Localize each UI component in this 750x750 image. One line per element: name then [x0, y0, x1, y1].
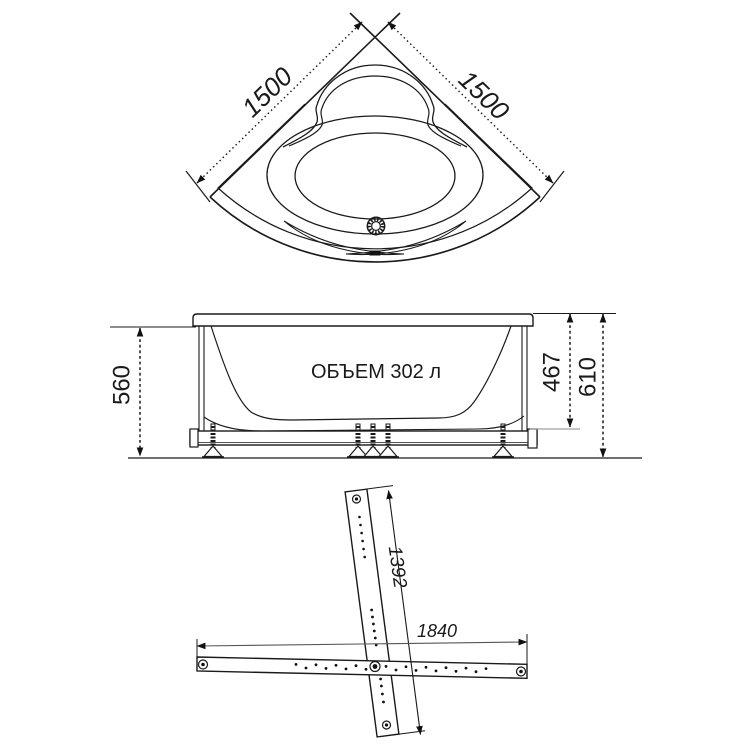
drawing-canvas: 1500 1500	[0, 0, 750, 750]
dim-467-label: 467	[539, 352, 566, 392]
rim-slab	[193, 314, 533, 326]
dim-610-label: 610	[575, 357, 602, 397]
frame-view: 1392 1840	[197, 486, 527, 737]
tub-rim-inner-contour	[218, 104, 532, 249]
dim-1500-right: 1500	[388, 22, 564, 202]
dim-line-1840	[197, 642, 527, 646]
main-rail	[197, 657, 527, 678]
rail-endcap-right	[528, 429, 537, 448]
cross-rail-end-hole-bottom-center	[385, 723, 388, 726]
shell-bottom	[204, 416, 524, 431]
cross-rail	[345, 489, 399, 737]
dim-560: 560	[109, 327, 197, 456]
dim-467: 467	[530, 314, 580, 429]
overflow-marker	[370, 251, 381, 256]
volume-label: ОБЪЕМ 302 л	[311, 361, 441, 383]
dim-1500-left: 1500	[186, 22, 362, 202]
cross-rail-end-hole-top-center	[355, 497, 358, 500]
seat-crescent-right	[346, 221, 466, 255]
technical-drawing-page: 1500 1500	[0, 0, 750, 750]
main-rail-end-hole-left-center	[201, 663, 205, 667]
rail-endcap-left	[190, 429, 198, 447]
side-view: ОБЪЕМ 302 л 560 467 610	[109, 314, 643, 459]
dim-1500-left-label: 1500	[236, 61, 299, 123]
drain	[367, 217, 384, 234]
main-rail-center-hole-center	[373, 664, 378, 669]
top-view: 1500 1500	[186, 13, 564, 262]
dim-1392-label: 1392	[384, 545, 411, 590]
dim-tick	[399, 731, 425, 734]
basin-oval-outer	[267, 116, 483, 234]
basin-oval-inner	[295, 133, 455, 219]
dim-tick	[186, 171, 210, 202]
main-rail-end-hole-right-center	[519, 670, 523, 674]
headrest-inner	[289, 76, 461, 146]
dim-1840-label: 1840	[417, 621, 457, 641]
seat-crescent-left	[284, 221, 404, 255]
dim-tick	[540, 171, 564, 202]
dim-560-label: 560	[109, 365, 136, 405]
dim-line-1500-left	[197, 22, 362, 183]
dim-tick	[367, 486, 393, 489]
